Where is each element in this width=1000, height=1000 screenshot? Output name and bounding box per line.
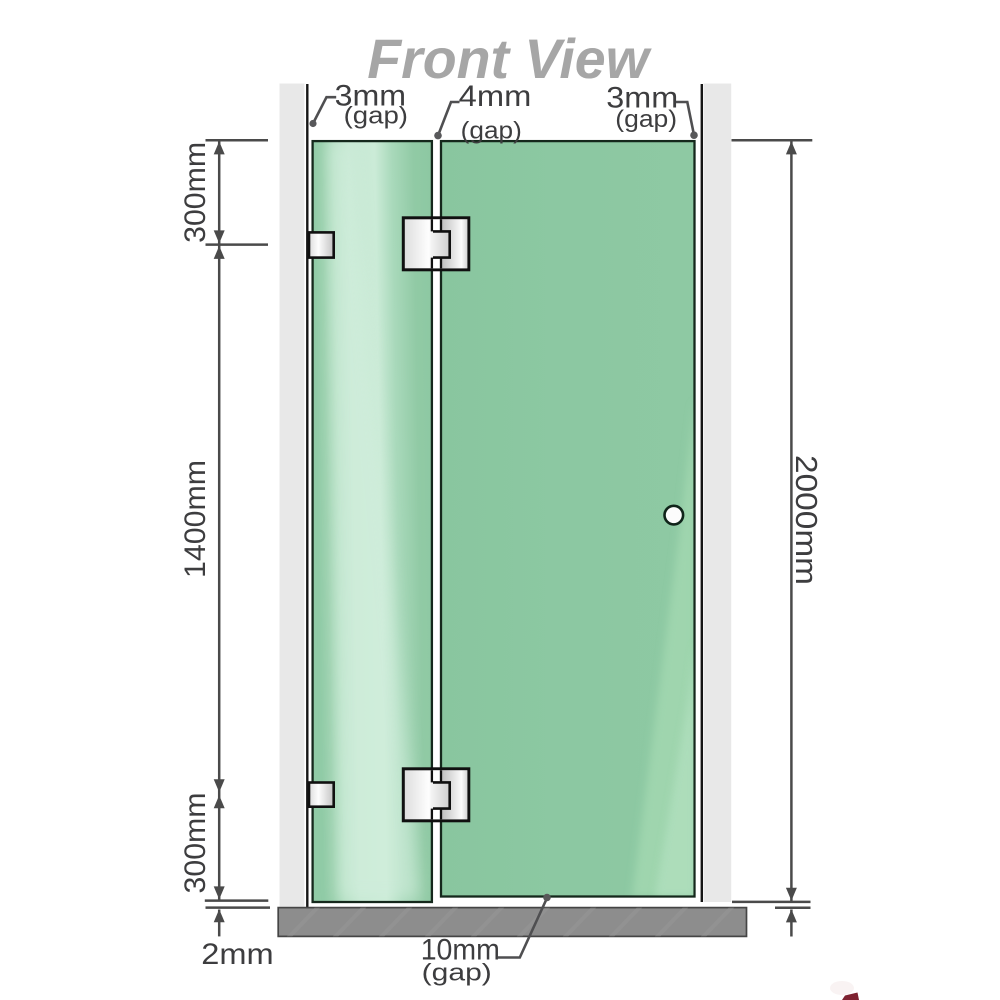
svg-text:4mm: 4mm [459, 80, 532, 113]
svg-text:1400mm: 1400mm [179, 460, 212, 578]
svg-text:(gap): (gap) [615, 106, 677, 133]
svg-text:2000mm: 2000mm [789, 455, 823, 585]
svg-text:(gap): (gap) [344, 103, 408, 130]
svg-text:300mm: 300mm [179, 142, 212, 243]
svg-text:(gap): (gap) [422, 960, 492, 987]
svg-text:(gap): (gap) [461, 118, 522, 145]
svg-text:300mm: 300mm [179, 793, 212, 894]
svg-text:2mm: 2mm [201, 938, 273, 971]
